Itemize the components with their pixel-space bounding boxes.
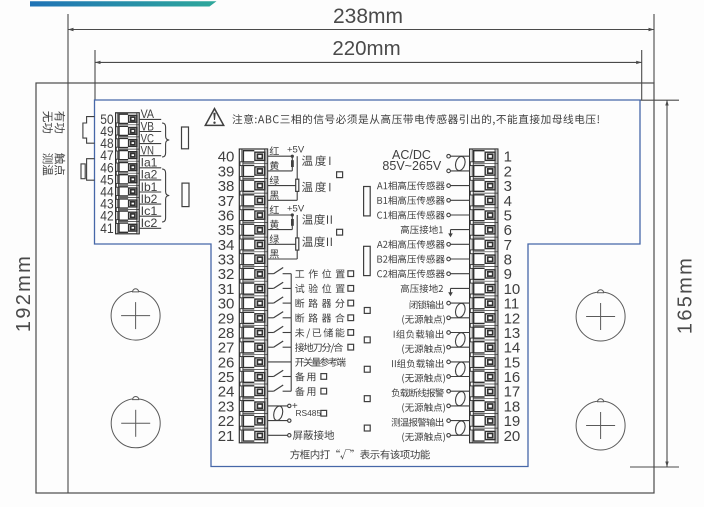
svg-text:Ic2: Ic2	[141, 216, 158, 230]
svg-text:192mm: 192mm	[13, 254, 35, 332]
svg-text:41: 41	[100, 220, 113, 236]
svg-text:20: 20	[504, 428, 521, 445]
svg-text:+5V: +5V	[287, 145, 305, 156]
svg-text:21: 21	[218, 428, 235, 445]
svg-text:220mm: 220mm	[332, 37, 400, 60]
svg-text:RS485: RS485	[296, 408, 322, 418]
svg-text:165mm: 165mm	[675, 256, 697, 334]
svg-text:85V~265V: 85V~265V	[382, 159, 441, 173]
svg-text:238mm: 238mm	[333, 5, 403, 28]
svg-text:+5V: +5V	[287, 203, 305, 214]
